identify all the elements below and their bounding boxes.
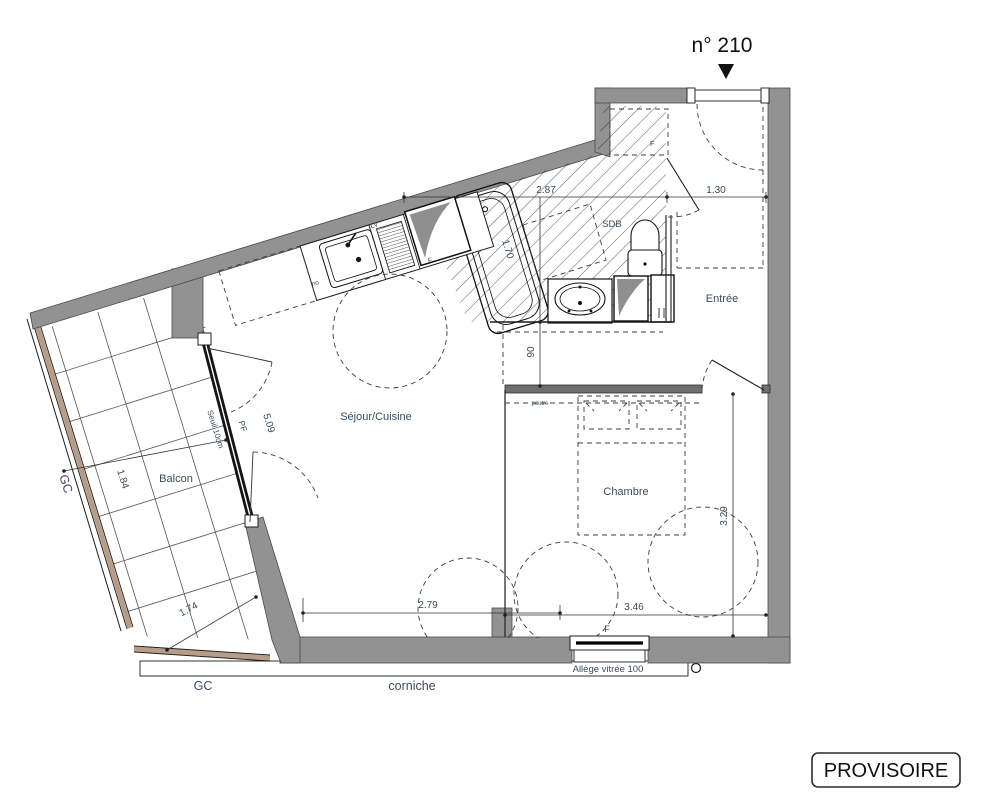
washing-machine-icon — [614, 276, 648, 321]
room-label-entree: Entrée — [706, 293, 738, 305]
chambre-window — [570, 636, 649, 662]
provisoire-stamp: PROVISOIRE — [812, 753, 960, 787]
room-label-sdb: SDB — [602, 219, 622, 230]
poutre-wall — [505, 385, 702, 393]
stamp-label: PROVISOIRE — [824, 760, 948, 782]
note-gc-bottom: GC — [194, 679, 213, 693]
room-label-sejour: Séjour/Cuisine — [340, 411, 412, 423]
downpipe-icon — [692, 664, 701, 673]
chambre-pilaster — [492, 608, 512, 637]
door-jamb — [761, 88, 769, 103]
background — [0, 0, 1003, 800]
dim-90: 90 — [526, 346, 537, 358]
note-f-window: F — [604, 624, 610, 634]
floor-plan-canvas: 1.70 F — [0, 0, 1003, 800]
room-label-chambre: Chambre — [603, 486, 648, 498]
dim-346: 3.46 — [624, 602, 644, 613]
door-jamb — [687, 88, 695, 103]
note-poutre: poutre — [531, 401, 549, 407]
floor-plan-page: 1.70 F — [0, 0, 1003, 800]
window-sill — [574, 650, 645, 662]
dim-279: 2.79 — [418, 600, 438, 611]
unit-number: n° 210 — [692, 34, 753, 57]
washbasin-icon — [548, 279, 612, 323]
dim-329: 3.29 — [719, 506, 730, 526]
note-allege: Allège vitrée 100 — [573, 664, 644, 675]
entrance-door-panel — [695, 90, 761, 101]
room-label-balcon: Balcon — [159, 473, 193, 485]
reserve-label: F — [650, 139, 655, 148]
toilet-icon — [628, 220, 662, 276]
note-corniche: corniche — [388, 679, 435, 693]
dim-130: 1.30 — [706, 185, 726, 196]
dim-287: 2.87 — [536, 185, 556, 196]
